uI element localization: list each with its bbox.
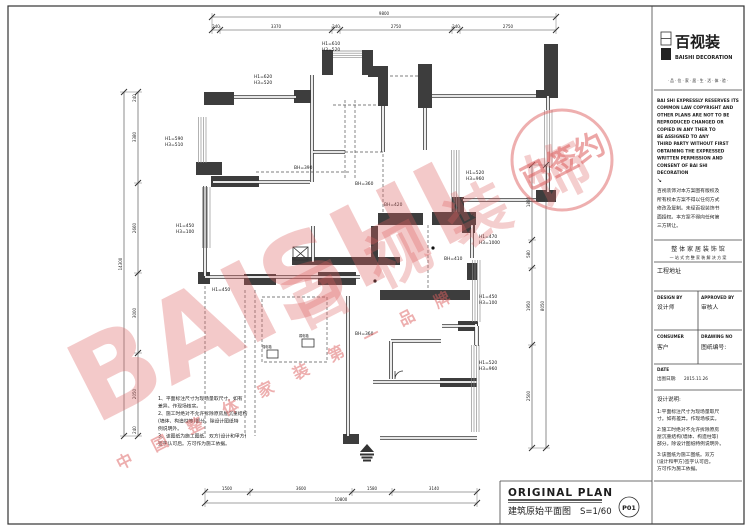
drawing-scale: S=1/60 (580, 507, 612, 517)
title-block: ORIGINAL PLAN 建筑原始平面图 S=1/60 P01 (500, 481, 652, 524)
design-note-line: (设计和甲方)签字认可后。 (657, 458, 714, 465)
dim-left-total: 14300 (118, 257, 123, 270)
design-notes-title: 设计说明: (657, 395, 681, 403)
dim-top-s3: 2750 (503, 24, 514, 29)
dim-bottom-s1: 1500 (222, 486, 233, 491)
drawing-sheet: 强电箱 弱电箱 240 3370 240 2750 240 2750 9800 … (0, 0, 750, 530)
slogan-secondary: 一 站 式 完 整 家 装 解 决 方 案 (670, 254, 727, 260)
approved-by-label: APPROVED BY (701, 295, 735, 300)
door-swing (395, 371, 403, 379)
copyright-line: DECORATION (657, 170, 689, 176)
logo-tagline: · 品 · 位 · 家 · 居 · 生 · 活 · 体 · 验 · (668, 78, 729, 83)
arrow-icon: ↘ (657, 177, 662, 184)
label-window-height: H3=100 (479, 300, 497, 306)
label-beam-height: BH=390 (294, 165, 313, 171)
design-note-line: 方可作为施工依据。 (657, 465, 700, 472)
design-note-line: 2:施工时绝对不允许拆除原房 (657, 426, 719, 433)
copyright-line: COMMON LAW COPYRIGHT AND (657, 105, 734, 111)
dim-right-s2: 580 (526, 250, 531, 258)
dim-bottom-total: 10800 (335, 497, 348, 502)
logo-mark-icon (661, 48, 671, 60)
copyright-line: 修改及复制。未经百视装饰书 (657, 205, 720, 212)
slogan-primary: 整 体 家 居 装 饰 馆 (671, 245, 724, 253)
dimensions-top: 240 3370 240 2750 240 2750 9800 (209, 11, 559, 34)
copyright-line: 百视装饰对本方案图有版权及 (657, 187, 720, 194)
label-window-height: H1=450 (176, 223, 194, 229)
page-number: P01 (622, 504, 636, 512)
label-window-height: H1=520 (479, 360, 497, 366)
label-window-height: H3=100 (176, 229, 194, 235)
dim-top-total: 9800 (379, 11, 390, 16)
copyright-line: BE ASSIGNED TO ANY (657, 134, 710, 140)
label-window-height: H3=520 (322, 47, 340, 53)
logo-en: BAISHI DECORATION (675, 55, 732, 61)
design-note-line: 3:该图纸为施工图纸。双方 (657, 451, 715, 458)
dim-240: 240 (452, 24, 460, 29)
copyright-line: THIRD PARTY WITHOUT FIRST (657, 141, 729, 147)
consumer-label: CONSUMER (657, 334, 685, 339)
dimensions-bottom: 1500 3600 1580 3140 10800 (202, 486, 480, 507)
copyright-line: OTHER PLANS ARE NOT TO BE (657, 112, 729, 118)
label-window-height: H3=510 (165, 142, 183, 148)
floorplan-svg: 强电箱 弱电箱 240 3370 240 2750 240 2750 9800 … (0, 0, 750, 530)
label-window-height: H1=450 (479, 294, 497, 300)
date-label: DATE (657, 367, 669, 372)
copyright-line: 面授权。本方案不得向任何第 (657, 213, 720, 220)
dim-240: 240 (212, 24, 220, 29)
dim-bottom-s4: 3140 (429, 486, 440, 491)
dim-right-total: 8050 (540, 300, 545, 311)
design-note-line: 1:平面标注尺寸为现场量取尺 (657, 408, 719, 415)
date-value: 2015.11.26 (684, 376, 708, 381)
design-note-line: 部分。除设计图纸特例说明外。 (657, 440, 724, 447)
company-logo: 百视装 BAISHI DECORATION · 品 · 位 · 家 · 居 · … (661, 32, 732, 83)
copyright-line: REPRODUCED CHANGED OR (657, 120, 724, 126)
copyright-line: COPIED IN ANY THER TO (657, 127, 716, 133)
design-by-label: DESIGN BY (657, 295, 683, 300)
dim-top-s2: 2750 (391, 24, 402, 29)
sidebar: 百视装 BAISHI DECORATION · 品 · 位 · 家 · 居 · … (652, 6, 742, 524)
dim-top-s1: 3370 (271, 24, 282, 29)
dim-bottom-s2: 3600 (296, 486, 307, 491)
client-label: 客户 (657, 343, 669, 351)
dim-left-s1: 3380 (132, 131, 137, 142)
dim-bottom-s3: 1580 (367, 486, 378, 491)
dim-240: 240 (132, 94, 137, 102)
design-notes: 设计说明: 1:平面标注尺寸为现场量取尺 寸。如有差异。作现场核实。 2:施工时… (657, 395, 724, 472)
drawing-title-en: ORIGINAL PLAN (508, 487, 613, 499)
drawing-no-cn-label: 图纸编号: (701, 343, 726, 351)
design-note-line: 屋沉重结构(墙体、构造柱等) (657, 433, 718, 440)
drawing-title-cn: 建筑原始平面图 (508, 505, 571, 517)
label-window-height: H1=620 (254, 74, 272, 80)
copyright-cn: ↘ 百视装饰对本方案图有版权及 所有权本方案不得以任何方式 修改及复制。未经百视… (657, 177, 720, 229)
copyright-line: OBTAINING THE EXPRESSED (657, 148, 725, 154)
entry-arrow-icon (360, 444, 374, 462)
dim-left-s2: 2660 (132, 222, 137, 233)
label-window-height: H3=960 (479, 366, 497, 372)
watermark: BAISHI 百视装饰 中 国 整 体 家 装 第 一 品 牌 已签约 (48, 110, 627, 474)
drawing-no-label: DRAWING NO (701, 334, 733, 339)
label-window-height: H1=610 (322, 41, 340, 47)
project-address-label: 工程地址 (657, 267, 681, 275)
copyright-en: BAI SHI EXPRESSLY RESERVES ITS COMMON LA… (657, 98, 739, 176)
dim-right-s3: 1950 (526, 300, 531, 311)
copyright-line: BAI SHI EXPRESSLY RESERVES ITS (657, 98, 739, 104)
logo-cn: 百视装 (675, 33, 721, 51)
field-grid: DESIGN BY 设计师 APPROVED BY 审核人 CONSUMER 客… (657, 295, 735, 382)
designer-label: 设计师 (657, 303, 675, 311)
copyright-line: WRITTEN PERMISSION AND (657, 156, 723, 162)
label-window-height: H3=520 (254, 80, 272, 86)
date-cn-label: 出图日期: (657, 375, 677, 382)
copyright-line: CONSENT OF BAI SHI (657, 163, 708, 169)
copyright-line: 三方转让。 (657, 222, 681, 229)
copyright-line: 所有权本方案不得以任何方式 (657, 196, 720, 203)
dim-right-s4: 2500 (526, 390, 531, 401)
design-note-line: 寸。如有差异。作现场核实。 (657, 415, 719, 422)
dim-240: 240 (332, 24, 340, 29)
label-window-height: H1=590 (165, 136, 183, 142)
approver-label: 审核人 (701, 303, 719, 311)
